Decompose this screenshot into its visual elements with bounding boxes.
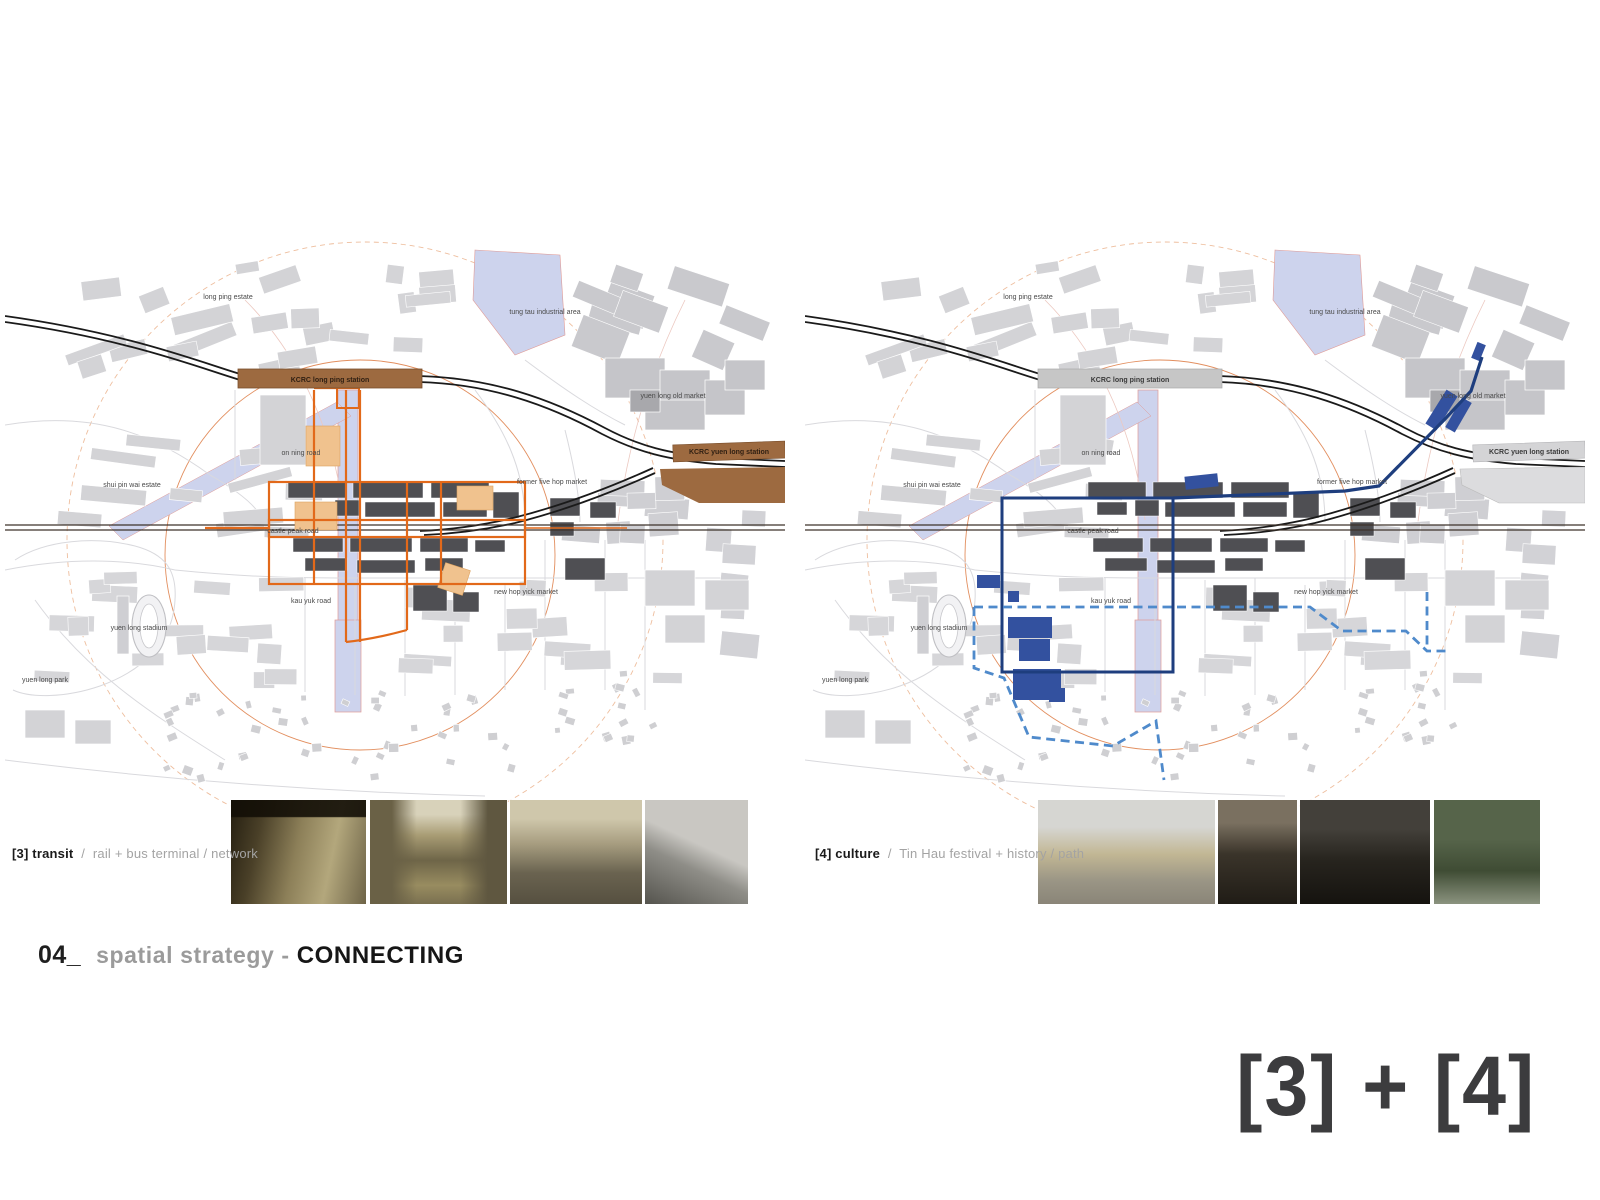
title-text: spatial strategy -	[96, 942, 297, 968]
map-label: yuen long old market	[1441, 393, 1506, 400]
map-panel-transit: KCRC long ping stationKCRC yuen long sta…	[5, 240, 785, 810]
map-label: former five hop market	[1317, 479, 1387, 486]
map-label: yuen long park	[822, 677, 868, 684]
transit-caption-tag: [3] transit	[12, 846, 73, 861]
map-label: kau yuk road	[291, 598, 331, 605]
map-label: on ning road	[1082, 450, 1121, 457]
map-label: castle peak road	[267, 528, 318, 535]
page-title: 04_ spatial strategy - CONNECTING	[38, 934, 464, 971]
map-label: shui pin wai estate	[903, 482, 961, 489]
photo-tree-lined-market-street	[1434, 800, 1540, 904]
map-label: long ping estate	[1003, 294, 1053, 301]
map-label: tung tau industrial area	[1309, 309, 1380, 316]
combination-tag: [3] + [4]	[1236, 1038, 1536, 1135]
map-panel-culture: KCRC long ping stationKCRC yuen long sta…	[805, 240, 1585, 810]
station-label: KCRC long ping station	[1091, 377, 1170, 384]
map-label: yuen long stadium	[911, 625, 968, 632]
station-label: KCRC yuen long station	[1489, 449, 1569, 456]
map-label: new hop yick market	[494, 589, 558, 596]
transit-map-figure: KCRC long ping stationKCRC yuen long sta…	[5, 240, 785, 810]
transit-caption-detail: rail + bus terminal / network	[93, 846, 258, 861]
photo-market-street-crowd	[510, 800, 642, 904]
photo-street-with-trams-and-buses	[370, 800, 507, 904]
map-label: yuen long park	[22, 677, 68, 684]
map-label: castle peak road	[1067, 528, 1118, 535]
map-label: tung tau industrial area	[509, 309, 580, 316]
photo-residential-towers-skyline	[645, 800, 748, 904]
title-emphasis: CONNECTING	[297, 942, 464, 969]
culture-map-figure: KCRC long ping stationKCRC yuen long sta…	[805, 240, 1585, 810]
base-map	[805, 242, 1585, 810]
map-label: on ning road	[282, 450, 321, 457]
culture-caption-tag: [4] culture	[815, 846, 880, 861]
photo-old-temple-doorway	[1218, 800, 1297, 904]
map-label: yuen long old market	[641, 393, 706, 400]
transit-caption: [3] transit / rail + bus terminal / netw…	[12, 846, 258, 861]
station-label: KCRC long ping station	[291, 377, 370, 384]
caption-separator: /	[81, 846, 85, 861]
map-label: new hop yick market	[1294, 589, 1358, 596]
map-label: former five hop market	[517, 479, 587, 486]
map-label: long ping estate	[203, 294, 253, 301]
map-label: yuen long stadium	[111, 625, 168, 632]
caption-separator: /	[888, 846, 892, 861]
base-map	[5, 242, 785, 810]
map-label: kau yuk road	[1091, 598, 1131, 605]
photo-temple-roof-detail	[1300, 800, 1430, 904]
map-label: shui pin wai estate	[103, 482, 161, 489]
title-number: 04_	[38, 941, 81, 969]
culture-caption: [4] culture / Tin Hau festival + history…	[815, 846, 1084, 861]
culture-caption-detail: Tin Hau festival + history / path	[899, 846, 1084, 861]
station-label: KCRC yuen long station	[689, 449, 769, 456]
